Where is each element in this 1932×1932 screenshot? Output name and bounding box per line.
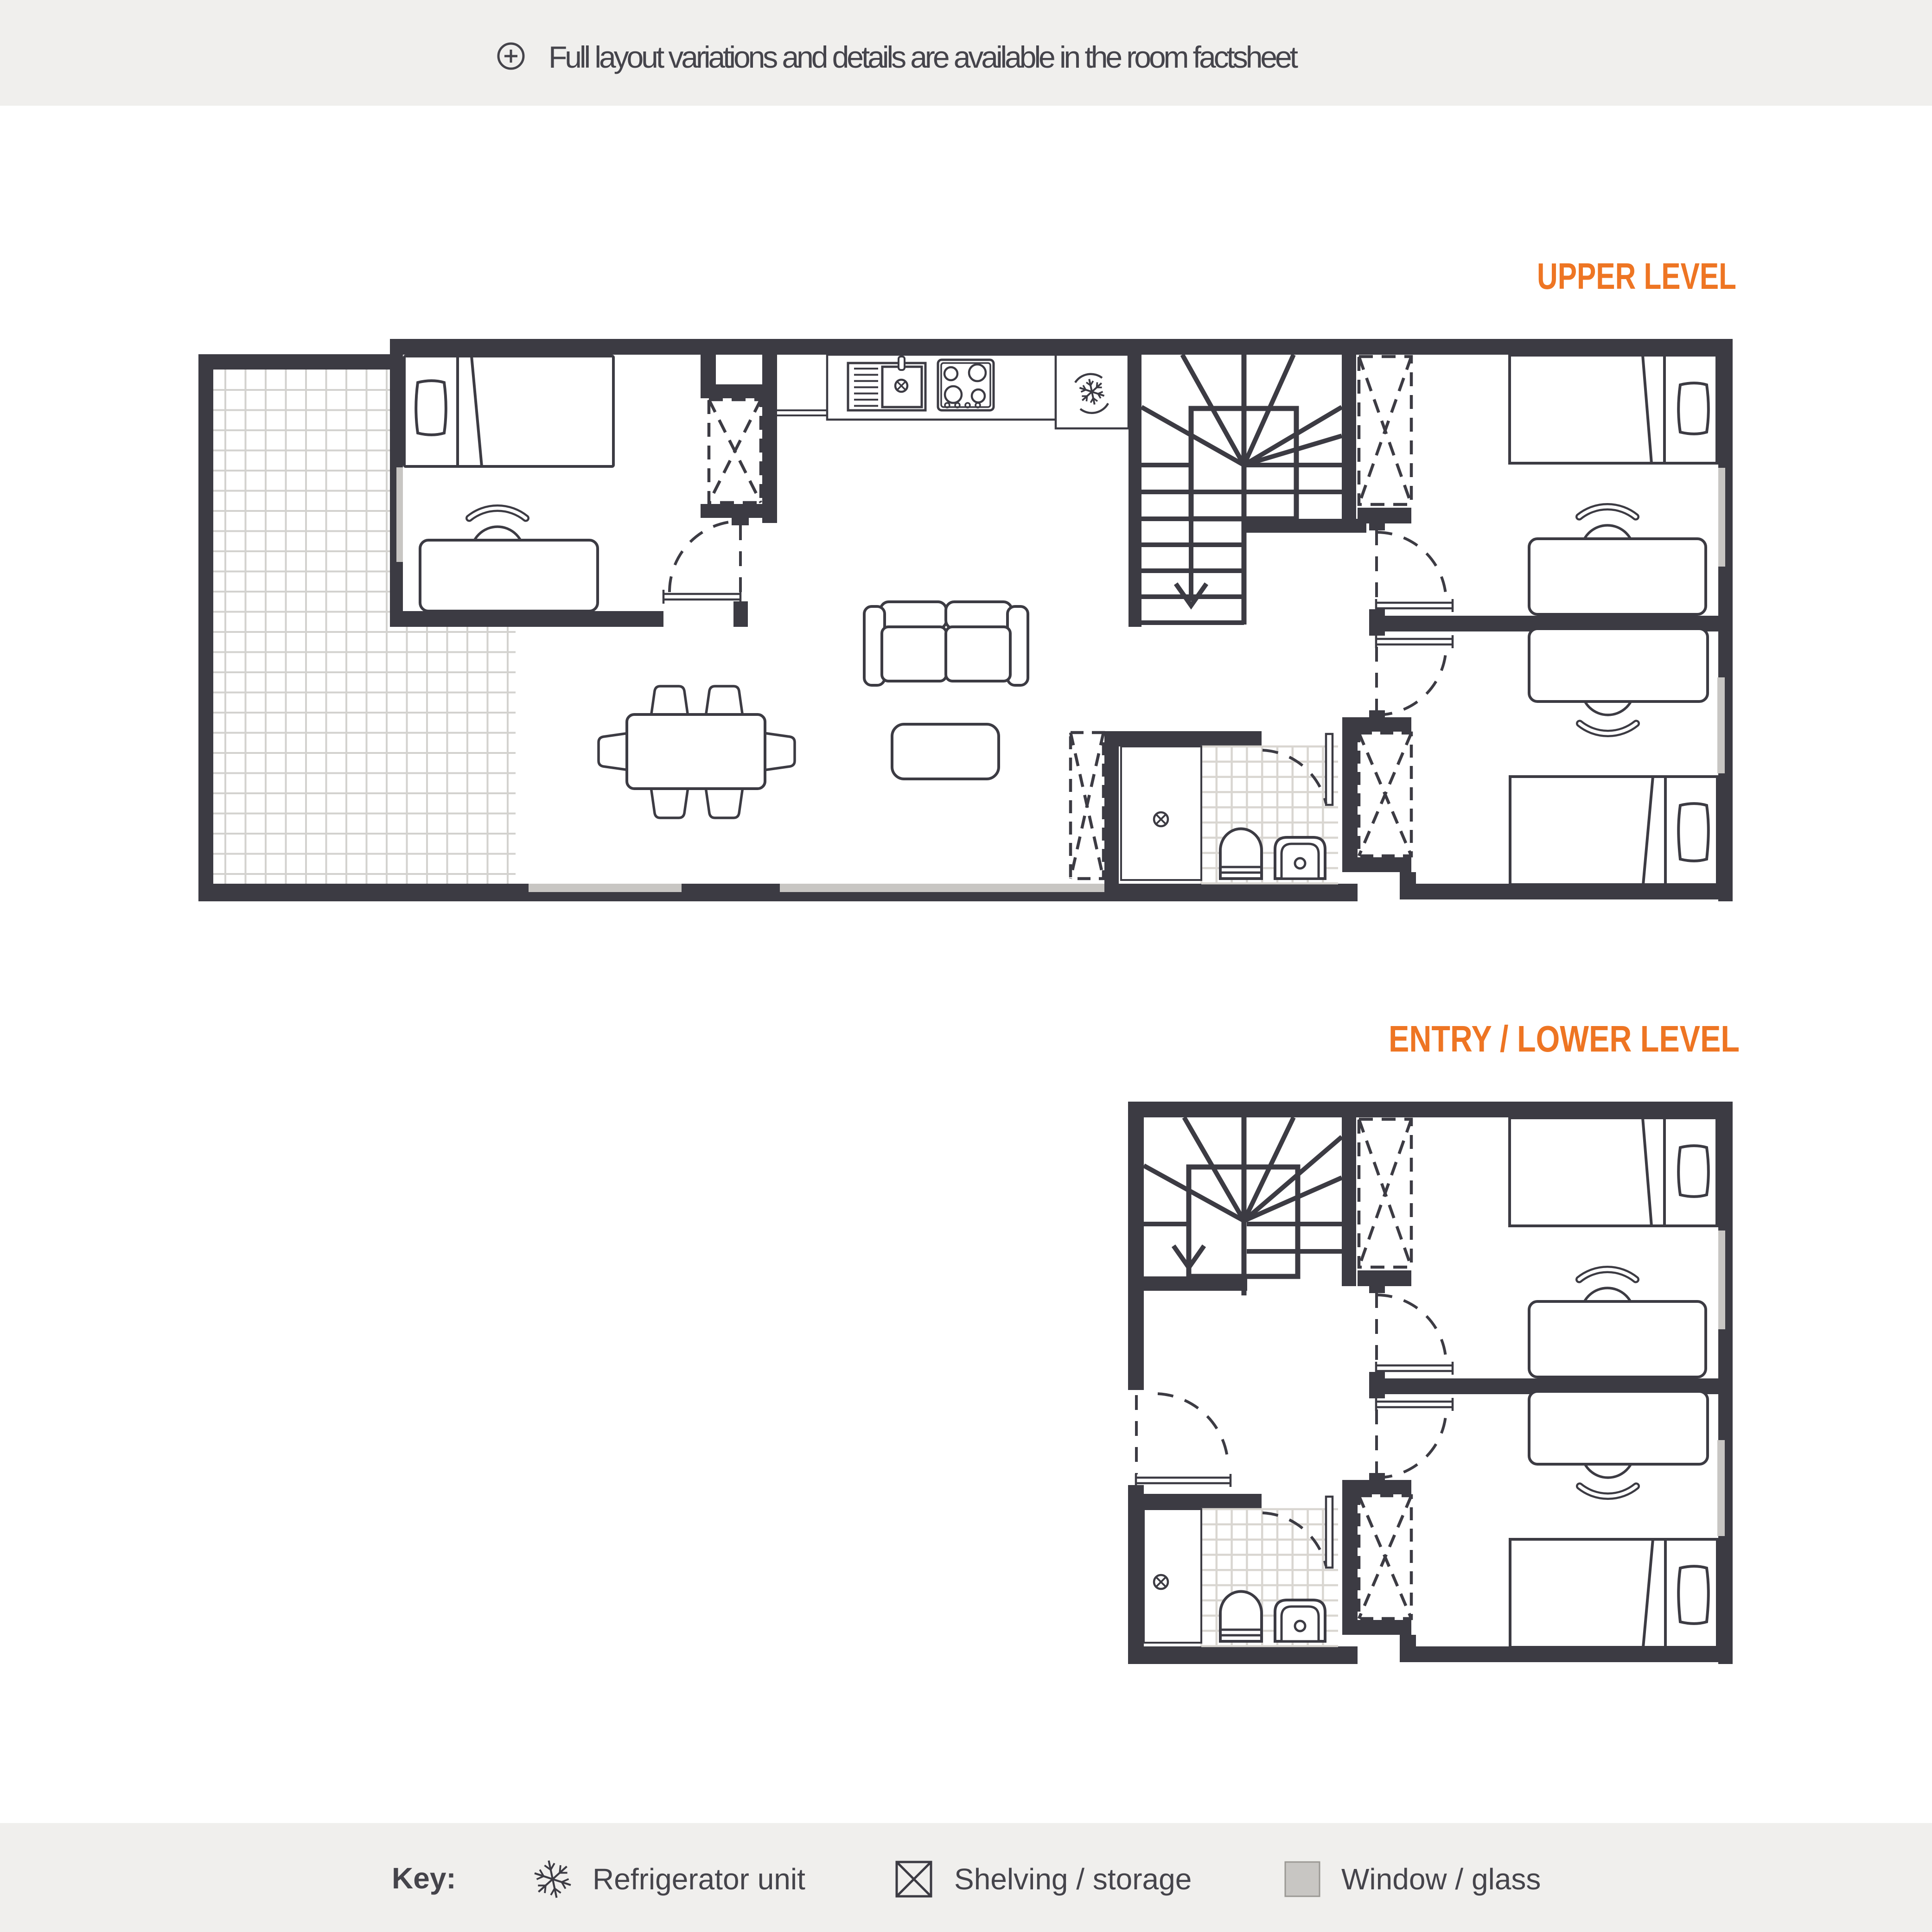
svg-text:Full layout variations and det: Full layout variations and details are a… (548, 40, 1298, 74)
svg-text:ENTRY / LOWER LEVEL: ENTRY / LOWER LEVEL (1389, 1018, 1740, 1059)
svg-text:Shelving / storage: Shelving / storage (954, 1862, 1192, 1896)
svg-text:Refrigerator unit: Refrigerator unit (593, 1862, 805, 1896)
svg-text:UPPER LEVEL: UPPER LEVEL (1537, 255, 1736, 297)
svg-text:Window / glass: Window / glass (1341, 1862, 1541, 1896)
svg-text:Key:: Key: (392, 1862, 456, 1895)
